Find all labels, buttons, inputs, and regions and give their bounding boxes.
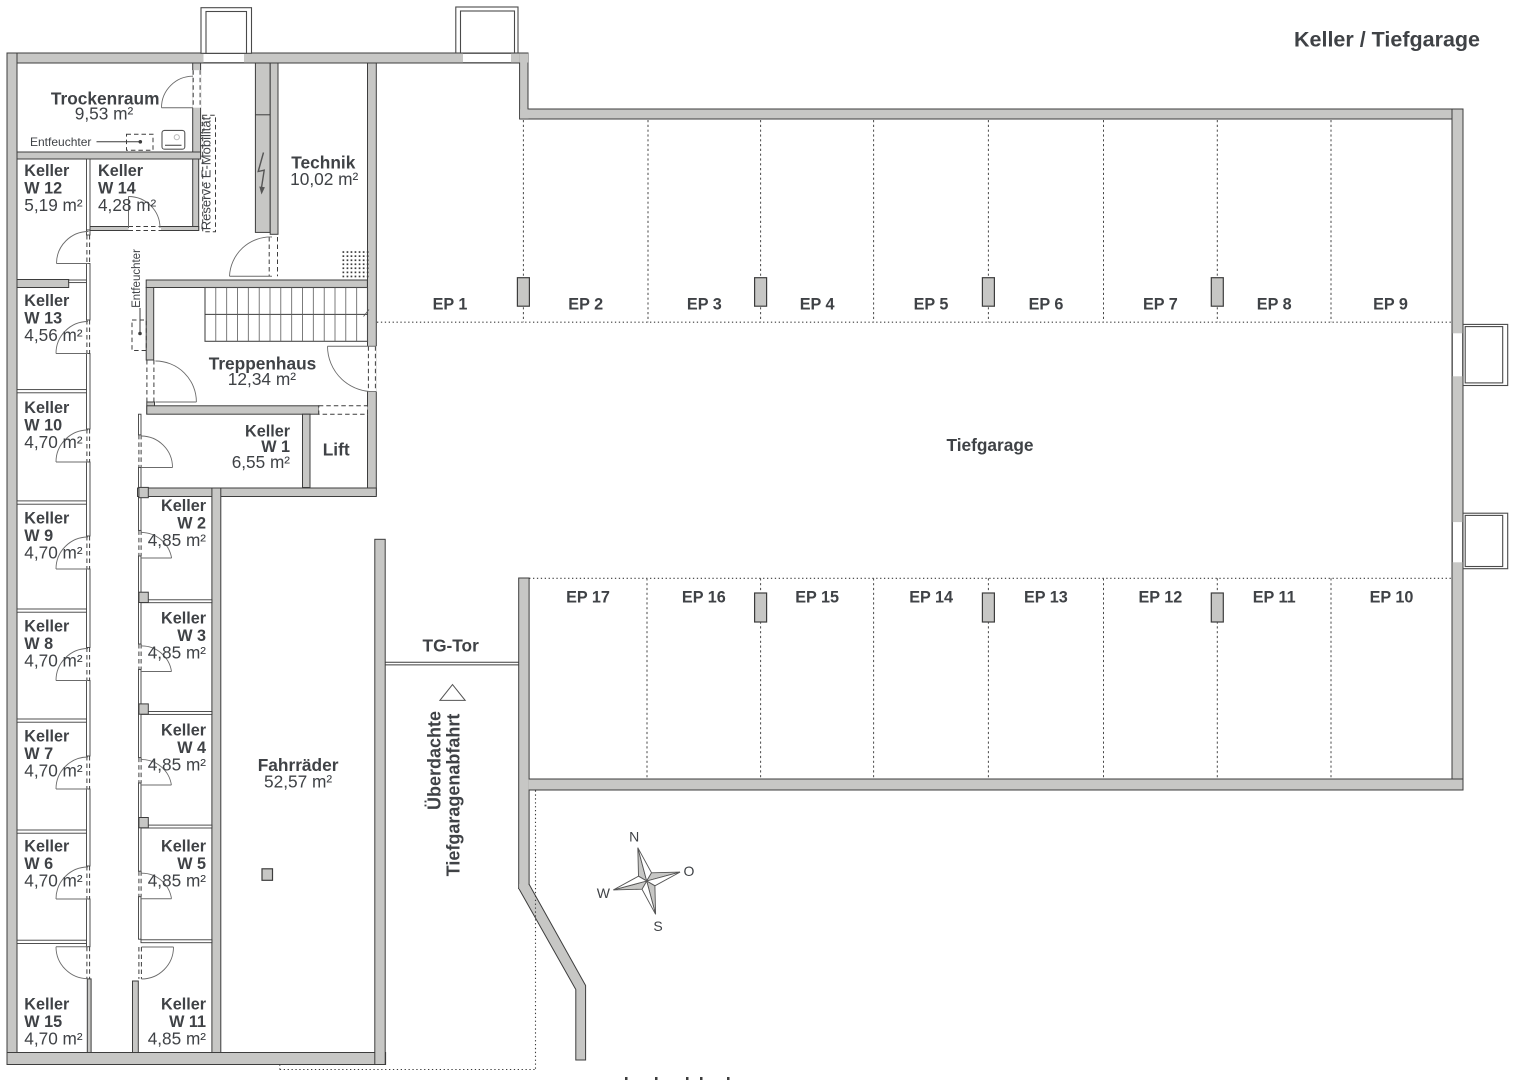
svg-text:Keller: Keller	[161, 722, 207, 740]
svg-text:4,70 m²: 4,70 m²	[24, 871, 83, 891]
svg-text:Keller / Tiefgarage: Keller / Tiefgarage	[1294, 28, 1480, 52]
svg-text:EP 14: EP 14	[909, 589, 953, 607]
svg-text:Keller: Keller	[24, 618, 70, 636]
svg-text:N: N	[629, 829, 639, 845]
svg-text:Lift: Lift	[323, 440, 350, 460]
svg-text:EP 7: EP 7	[1143, 296, 1178, 314]
svg-text:EP 4: EP 4	[800, 296, 835, 314]
svg-text:W: W	[597, 885, 611, 901]
svg-text:Keller: Keller	[161, 996, 207, 1014]
svg-text:Reserve E-Mobilität: Reserve E-Mobilität	[198, 116, 213, 230]
svg-text:4,85 m²: 4,85 m²	[148, 755, 207, 775]
svg-text:Überdachte: Überdachte	[425, 711, 445, 810]
svg-text:6,55 m²: 6,55 m²	[232, 452, 291, 472]
svg-text:EP 8: EP 8	[1257, 296, 1292, 314]
svg-text:S: S	[653, 918, 662, 934]
svg-text:4,85 m²: 4,85 m²	[148, 643, 207, 663]
svg-text:EP 16: EP 16	[682, 589, 726, 607]
svg-text:9,53 m²: 9,53 m²	[75, 104, 134, 124]
svg-text:Keller: Keller	[24, 509, 70, 527]
svg-text:EP 1: EP 1	[433, 296, 468, 314]
svg-text:4,28 m²: 4,28 m²	[98, 195, 157, 215]
svg-text:EP 2: EP 2	[568, 296, 603, 314]
svg-text:52,57 m²: 52,57 m²	[264, 772, 332, 792]
svg-text:12,34 m²: 12,34 m²	[228, 369, 296, 389]
svg-text:EP 9: EP 9	[1373, 296, 1408, 314]
svg-text:EP 12: EP 12	[1138, 589, 1182, 607]
svg-text:Keller: Keller	[161, 838, 207, 856]
svg-text:Keller: Keller	[24, 728, 70, 746]
svg-text:O: O	[683, 863, 694, 879]
svg-text:4,70 m²: 4,70 m²	[24, 543, 83, 563]
svg-text:Keller: Keller	[24, 162, 70, 180]
svg-text:Entfeuchter: Entfeuchter	[131, 249, 143, 308]
svg-text:EP 15: EP 15	[795, 589, 839, 607]
svg-text:Keller: Keller	[24, 996, 70, 1014]
svg-text:Tiefgaragenabfahrt: Tiefgaragenabfahrt	[444, 714, 464, 877]
svg-text:4,70 m²: 4,70 m²	[24, 651, 83, 671]
svg-text:4,85 m²: 4,85 m²	[148, 530, 207, 550]
svg-text:4,70 m²: 4,70 m²	[24, 761, 83, 781]
svg-text:10,02 m²: 10,02 m²	[290, 169, 358, 189]
svg-text:Keller: Keller	[98, 162, 144, 180]
svg-text:EP 10: EP 10	[1370, 589, 1414, 607]
svg-text:Tiefgarage: Tiefgarage	[946, 435, 1033, 455]
svg-text:4,85 m²: 4,85 m²	[148, 871, 207, 891]
svg-text:Keller: Keller	[24, 838, 70, 856]
svg-text:Entfeuchter: Entfeuchter	[30, 135, 91, 149]
svg-text:Keller: Keller	[24, 292, 70, 310]
svg-text:4,70 m²: 4,70 m²	[24, 1029, 83, 1049]
svg-text:Keller: Keller	[161, 497, 207, 515]
svg-text:5,19 m²: 5,19 m²	[24, 195, 83, 215]
svg-text:EP 5: EP 5	[914, 296, 949, 314]
svg-text:EP 6: EP 6	[1029, 296, 1064, 314]
svg-text:4,56 m²: 4,56 m²	[24, 325, 83, 345]
svg-text:EP 17: EP 17	[566, 589, 610, 607]
svg-text:Keller: Keller	[161, 610, 207, 628]
svg-text:Keller: Keller	[24, 399, 70, 417]
svg-text:EP 13: EP 13	[1024, 589, 1068, 607]
svg-text:EP 3: EP 3	[687, 296, 722, 314]
svg-text:TG-Tor: TG-Tor	[423, 636, 480, 656]
svg-text:EP 11: EP 11	[1253, 589, 1296, 607]
svg-text:4,70 m²: 4,70 m²	[24, 432, 83, 452]
svg-text:4,85 m²: 4,85 m²	[148, 1029, 207, 1049]
